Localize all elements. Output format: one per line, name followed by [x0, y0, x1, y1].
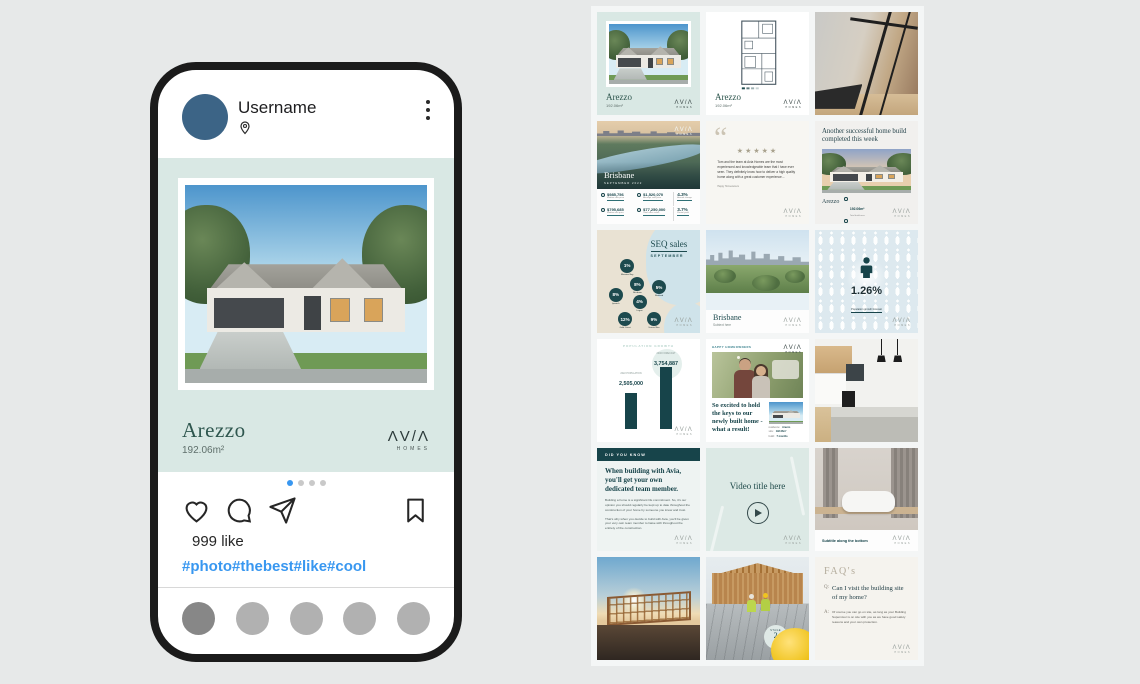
tile-construction-workers[interactable]: STAGE 2 — [706, 557, 809, 660]
timber-frame — [607, 591, 691, 626]
tile-did-you-know[interactable]: DID YOU KNOW When building with Avia, yo… — [597, 448, 700, 551]
tile-happy-homeowners[interactable]: HAPPY HOMEOWNERS ΛV/ΛHOMES So excited to… — [706, 339, 809, 442]
chart-title: POPULATION GROWTH — [597, 344, 700, 348]
brand-logo: ΛV/ΛHOMES — [675, 127, 694, 137]
home-name: Arezzo — [182, 418, 246, 443]
owner-quote: So excited to hold the keys to our newly… — [712, 402, 765, 438]
location-pin-icon — [239, 121, 251, 135]
couple-photo — [712, 352, 803, 398]
brand-logo: ΛV/Λ HOMES — [388, 429, 430, 452]
city-photo — [706, 230, 809, 310]
play-icon[interactable] — [747, 502, 769, 524]
tile-heading: When building with Avia, you'll get your… — [605, 467, 692, 494]
home-area: 192.06m² — [182, 445, 246, 456]
city-title: Brisbane — [604, 170, 693, 180]
brand-logo: ΛV/ΛHOMES — [675, 318, 694, 328]
faq-question: Can I visit the building site of my home… — [832, 585, 909, 602]
heart-icon[interactable] — [182, 496, 211, 525]
tile-kitchen-photo[interactable] — [815, 339, 918, 442]
feed-grid: Arezzo 192.06m² ΛV/ΛHOMES Arezzo 192.06m… — [591, 6, 924, 666]
faq-answer: Of course you can go on site, as long as… — [832, 610, 907, 625]
tile-bathroom[interactable]: Subtitle along the bottom ΛV/ΛHOMES — [815, 448, 918, 551]
faq-header: FAQ's — [824, 566, 909, 577]
stats-panel: $985,756Median sale price $1,520,070Aver… — [597, 189, 700, 224]
tile-faq[interactable]: FAQ's Q: Can I visit the building site o… — [815, 557, 918, 660]
testimonial-attribution: Happy Homeowners — [717, 185, 797, 188]
keys — [737, 356, 740, 359]
map-stat: 1%Moreton Bay — [620, 259, 635, 276]
tile-testimonial[interactable]: “ ★★★★★ Tom and the team at Avia Homes a… — [706, 121, 809, 224]
brand-logo: ΛV/ΛHOMES — [784, 209, 803, 219]
tile-seq-sales-map[interactable]: SEQ sales SEPTEMBER 1%Moreton Bay 8%Bris… — [597, 230, 700, 333]
house-photo — [822, 149, 911, 193]
bathtub — [842, 491, 896, 512]
tile-brisbane-photo[interactable]: Brisbane Subtext here ΛV/ΛHOMES — [706, 230, 809, 333]
brand-logo: ΛV/ΛHOMES — [784, 345, 803, 355]
house-photo — [609, 24, 688, 84]
phone-mockup: Username Arezzo 192.06m² — [150, 62, 462, 662]
username[interactable]: Username — [238, 98, 316, 118]
house-photo — [185, 185, 427, 383]
map-stat: 8%Ipswich — [608, 288, 623, 305]
bar-value: 2,505,000 — [611, 381, 651, 387]
brand-logo: ΛV/ΛHOMES — [675, 100, 694, 110]
carousel-dots — [158, 472, 454, 492]
stat-value: 1.26% — [815, 285, 918, 297]
tile-frame-construction[interactable] — [597, 557, 700, 660]
map-stat: 12%Gold Coast — [618, 312, 633, 329]
bar-2022 — [625, 393, 637, 429]
like-count[interactable]: 999 like — [158, 525, 454, 550]
bar-2046 — [660, 367, 672, 429]
brand-logo: ΛV/ΛHOMES — [784, 100, 803, 110]
person-icon — [859, 257, 874, 278]
tile-home-build[interactable]: Another successful home build completed … — [815, 121, 918, 224]
map-stat: 9%Scenic Rim — [646, 312, 661, 329]
hashtags[interactable]: #photo#thebest#like#cool — [158, 550, 454, 575]
bookmark-icon[interactable] — [401, 496, 430, 525]
brand-logo: ΛV/ΛHOMES — [893, 536, 912, 546]
brand-logo: ΛV/ΛHOMES — [893, 645, 912, 655]
post-image[interactable]: Arezzo 192.06m² ΛV/Λ HOMES — [158, 158, 454, 472]
map-stat: 8%Brisbane — [630, 277, 645, 294]
caption: Subtitle along the bottom — [822, 539, 868, 543]
map-title: SEQ sales — [651, 239, 688, 252]
tile-brisbane-stats[interactable]: Brisbane SEPTEMBER 2022 ΛV/ΛHOMES $985,7… — [597, 121, 700, 224]
kebab-menu-icon[interactable] — [426, 100, 430, 120]
tile-interior-photo[interactable] — [815, 12, 918, 115]
tile-floor-plan[interactable]: Arezzo 192.06m² ΛV/ΛHOMES — [706, 12, 809, 115]
quote-icon: “ — [714, 121, 727, 155]
brand-logo: ΛV/ΛHOMES — [893, 209, 912, 219]
floor-plan-drawing — [724, 18, 792, 92]
post-header: Username — [158, 70, 454, 158]
stat-label: Population growth forecast — [851, 308, 882, 313]
oven — [842, 391, 855, 407]
house-thumb — [769, 402, 803, 424]
brand-logo: ΛV/ΛHOMES — [675, 536, 694, 546]
testimonial-text: Tom and the team at Avia Homes are the m… — [717, 160, 797, 181]
bathroom-photo — [815, 448, 918, 530]
action-bar — [158, 492, 454, 525]
brand-logo: ΛV/ΛHOMES — [893, 318, 912, 328]
map-stat: 5%Redland — [652, 280, 667, 297]
nav-dots[interactable] — [158, 588, 454, 635]
worker — [747, 600, 756, 612]
comment-icon[interactable] — [225, 496, 254, 525]
hard-hat — [763, 593, 768, 598]
home-name: Arezzo — [606, 92, 632, 102]
home-name: Arezzo — [715, 92, 741, 102]
worker — [761, 599, 770, 611]
map-stat: 4%Logan — [632, 295, 647, 312]
tile-population-stat[interactable]: 1.26% Population growth forecast ΛV/ΛHOM… — [815, 230, 918, 333]
pendant-light — [893, 355, 902, 362]
brand-logo: ΛV/ΛHOMES — [784, 318, 803, 328]
photo-frame — [178, 178, 434, 390]
share-icon[interactable] — [268, 496, 297, 525]
tile-arezzo-exterior[interactable]: Arezzo 192.06m² ΛV/ΛHOMES — [597, 12, 700, 115]
home-name: Arezzo — [822, 199, 839, 205]
brand-logo: ΛV/ΛHOMES — [675, 427, 694, 437]
tile-header: DID YOU KNOW — [597, 448, 700, 461]
pendant-light — [877, 355, 886, 362]
video-title: Video title here — [706, 481, 809, 491]
tile-population-chart[interactable]: POPULATION GROWTH 2022 POPULATION 2,505,… — [597, 339, 700, 442]
post-caption: Arezzo 192.06m² — [182, 418, 246, 456]
tile-title: Another successful home build completed … — [822, 128, 911, 145]
brand-logo: ΛV/ΛHOMES — [784, 536, 803, 546]
avatar[interactable] — [182, 94, 228, 140]
tile-video[interactable]: Video title here ΛV/ΛHOMES — [706, 448, 809, 551]
